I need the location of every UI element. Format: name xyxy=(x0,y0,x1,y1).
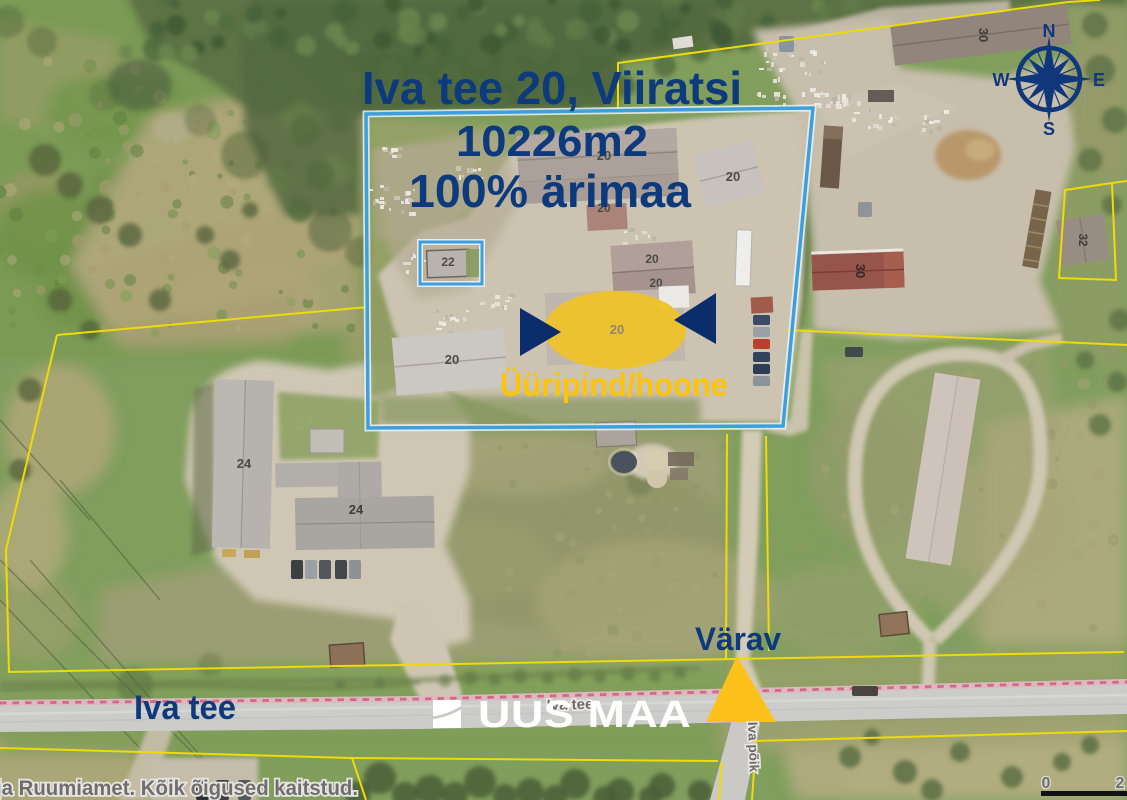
svg-text:Iva põik: Iva põik xyxy=(745,722,762,773)
svg-text:100% ärimaa: 100% ärimaa xyxy=(409,165,691,217)
svg-text:UUS MAA: UUS MAA xyxy=(478,692,691,735)
svg-text:22: 22 xyxy=(441,255,455,269)
svg-text:20: 20 xyxy=(726,169,740,184)
svg-text:2: 2 xyxy=(1116,775,1125,792)
svg-text:24: 24 xyxy=(349,502,364,517)
svg-text:Värav: Värav xyxy=(695,621,781,657)
svg-text:30: 30 xyxy=(853,264,868,278)
svg-text:Iva tee 20, Viiratsi: Iva tee 20, Viiratsi xyxy=(362,62,742,114)
svg-text:Iva tee: Iva tee xyxy=(134,689,236,727)
svg-text:N: N xyxy=(1043,21,1056,41)
svg-text:20: 20 xyxy=(645,252,659,266)
svg-text:20: 20 xyxy=(610,322,624,337)
svg-text:32: 32 xyxy=(1076,234,1088,247)
svg-text:S: S xyxy=(1043,119,1055,139)
svg-text:W: W xyxy=(993,70,1010,90)
svg-text:24: 24 xyxy=(237,456,252,471)
svg-text:20: 20 xyxy=(445,352,459,367)
svg-text:30: 30 xyxy=(976,28,991,42)
svg-text:Üüripind/hoone: Üüripind/hoone xyxy=(500,366,728,403)
svg-text:10226m2: 10226m2 xyxy=(456,117,648,166)
svg-text:0: 0 xyxy=(1042,775,1051,792)
svg-text:E: E xyxy=(1093,70,1105,90)
svg-text:ja Ruumiamet. Kõik õigused kai: ja Ruumiamet. Kõik õigused kaitstud. xyxy=(0,777,358,800)
